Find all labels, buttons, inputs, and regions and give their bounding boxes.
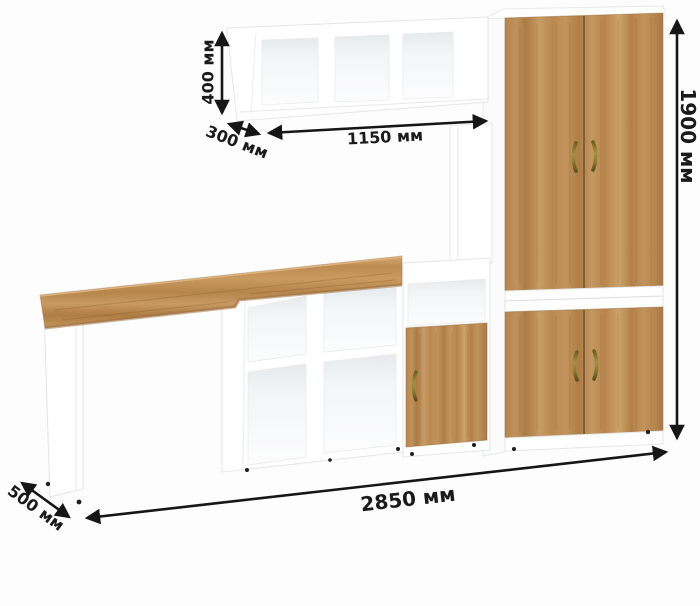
shelving-opening-top-right	[324, 287, 396, 352]
shelf-opening-1	[262, 38, 318, 105]
shelf-opening-2	[335, 35, 389, 102]
center-column	[450, 123, 492, 266]
furniture-drawing	[0, 0, 700, 606]
tall-cabinet	[483, 6, 666, 456]
wall-shelf	[227, 17, 488, 121]
shelf-opening-3	[403, 32, 453, 99]
shelving-opening-bottom-left	[248, 364, 306, 465]
shelving-opening-top-left	[248, 296, 306, 362]
small-cabinet-door	[406, 323, 487, 447]
furniture-dimension-diagram: 400 мм 300 мм 1150 мм 1900 мм 2850 мм 50…	[0, 0, 700, 606]
desk-left-panel	[44, 306, 83, 497]
dimension-label-shelf-height: 400 мм	[199, 39, 218, 104]
dimension-label-shelf-width: 1150 мм	[346, 126, 423, 149]
dimension-label-cabinet-height: 1900 мм	[676, 88, 700, 183]
shelving-opening-bottom-right	[324, 354, 396, 453]
small-cabinet-open-shelf	[408, 279, 485, 326]
small-cabinet	[403, 258, 490, 457]
